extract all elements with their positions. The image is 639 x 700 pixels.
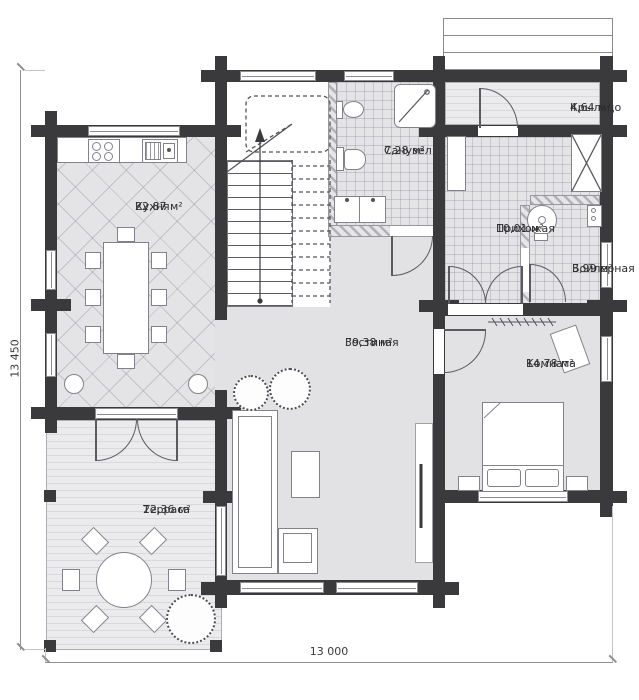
dimension-bottom-value: 13 000 — [259, 645, 399, 658]
bathroom-window — [344, 71, 394, 81]
extension-line — [25, 70, 45, 71]
nightstand — [458, 476, 480, 491]
log-joint — [433, 568, 445, 608]
living-south-window-2 — [336, 582, 418, 593]
stool — [188, 374, 208, 394]
chair — [85, 252, 101, 269]
burner-icon — [92, 152, 101, 161]
bathroom-door-opening — [390, 226, 433, 236]
chair — [151, 289, 167, 306]
sofa-seat — [238, 416, 272, 568]
faucet-icon — [167, 148, 171, 152]
stairs-lower-flight — [227, 160, 293, 307]
terrace-post — [210, 640, 222, 652]
log-joint — [600, 286, 613, 326]
plant-icon — [269, 368, 311, 410]
terrace-post — [44, 490, 56, 502]
chair — [151, 326, 167, 343]
toilet-tank — [336, 147, 344, 171]
bedroom-door-opening — [434, 329, 444, 374]
burner-icon — [104, 142, 113, 151]
chair — [117, 354, 135, 369]
room-area: 4,64 м² — [570, 101, 611, 115]
room-area: 3,99 м² — [572, 262, 613, 276]
sofa-chaise-seat — [283, 533, 312, 563]
log-joint — [215, 111, 227, 151]
sink-drainer — [145, 142, 161, 160]
log-joint — [600, 56, 613, 96]
floor-plan: Кухня 22,87 м² Санузел 7,28 м² Крыльцо 4… — [0, 0, 639, 700]
dim-tick — [17, 643, 25, 651]
toilet — [344, 149, 366, 170]
extension-line — [612, 506, 613, 662]
room-area: 7,28 м² — [384, 144, 425, 158]
stair-window — [240, 71, 316, 81]
chair — [168, 569, 186, 591]
chair — [85, 326, 101, 343]
log-joint — [215, 393, 227, 433]
boiler-north-wall — [530, 195, 600, 205]
nightstand — [566, 476, 588, 491]
passage-floor — [215, 320, 227, 390]
knob-icon — [591, 208, 596, 213]
chair — [85, 289, 101, 306]
log-joint — [45, 111, 57, 151]
shower — [394, 84, 436, 128]
terrace-door-threshold — [95, 408, 178, 419]
dim-tick — [17, 63, 25, 71]
bidet-bowl — [343, 101, 364, 118]
hall-cabinet — [447, 136, 466, 191]
burner-icon — [92, 142, 101, 151]
room-area: 39,38 м² — [345, 336, 393, 350]
double-sink — [334, 196, 386, 223]
terrace-table — [96, 552, 152, 608]
wall-stair-west — [215, 70, 227, 320]
plant-icon — [166, 594, 216, 644]
wardrobe — [571, 134, 602, 192]
stool — [64, 374, 84, 394]
tv-stand — [415, 423, 433, 563]
living-terrace-window — [216, 506, 226, 576]
burner-icon — [104, 152, 113, 161]
log-joint — [215, 56, 227, 96]
chair — [62, 569, 80, 591]
room-area: 14,78 м² — [526, 357, 574, 371]
log-joint — [45, 393, 57, 433]
room-area: 22,87 м² — [135, 200, 183, 214]
extension-line — [25, 649, 45, 650]
dimension-left-value: 13 450 — [9, 327, 22, 391]
log-joint — [45, 285, 57, 325]
kitchen-west-window-1 — [46, 250, 56, 290]
kitchen-west-window-2 — [46, 333, 56, 377]
entrance-steps — [443, 18, 613, 71]
coffee-table — [291, 451, 320, 498]
knob-icon — [591, 216, 596, 221]
bidet — [336, 101, 343, 119]
pillow — [487, 469, 521, 487]
bedroom-south-window — [478, 491, 568, 502]
living-south-window-1 — [240, 582, 324, 593]
faucet-icon — [371, 198, 375, 202]
kitchen-window — [88, 126, 180, 136]
hall-double-door-opening — [448, 304, 523, 315]
sink-divider — [359, 197, 360, 222]
bed-blanket — [482, 402, 564, 466]
log-joint — [433, 477, 445, 517]
chair — [117, 227, 135, 242]
log-joint — [433, 286, 445, 326]
dimension-line-bottom — [45, 662, 613, 663]
room-area: 22,36 м² — [143, 503, 191, 517]
room-area: 10,01 м² — [496, 222, 544, 236]
bedroom-east-window — [601, 336, 612, 382]
pillow — [525, 469, 559, 487]
faucet-icon — [345, 198, 349, 202]
chair — [151, 252, 167, 269]
plant-icon — [233, 375, 269, 411]
dining-table — [103, 242, 149, 354]
